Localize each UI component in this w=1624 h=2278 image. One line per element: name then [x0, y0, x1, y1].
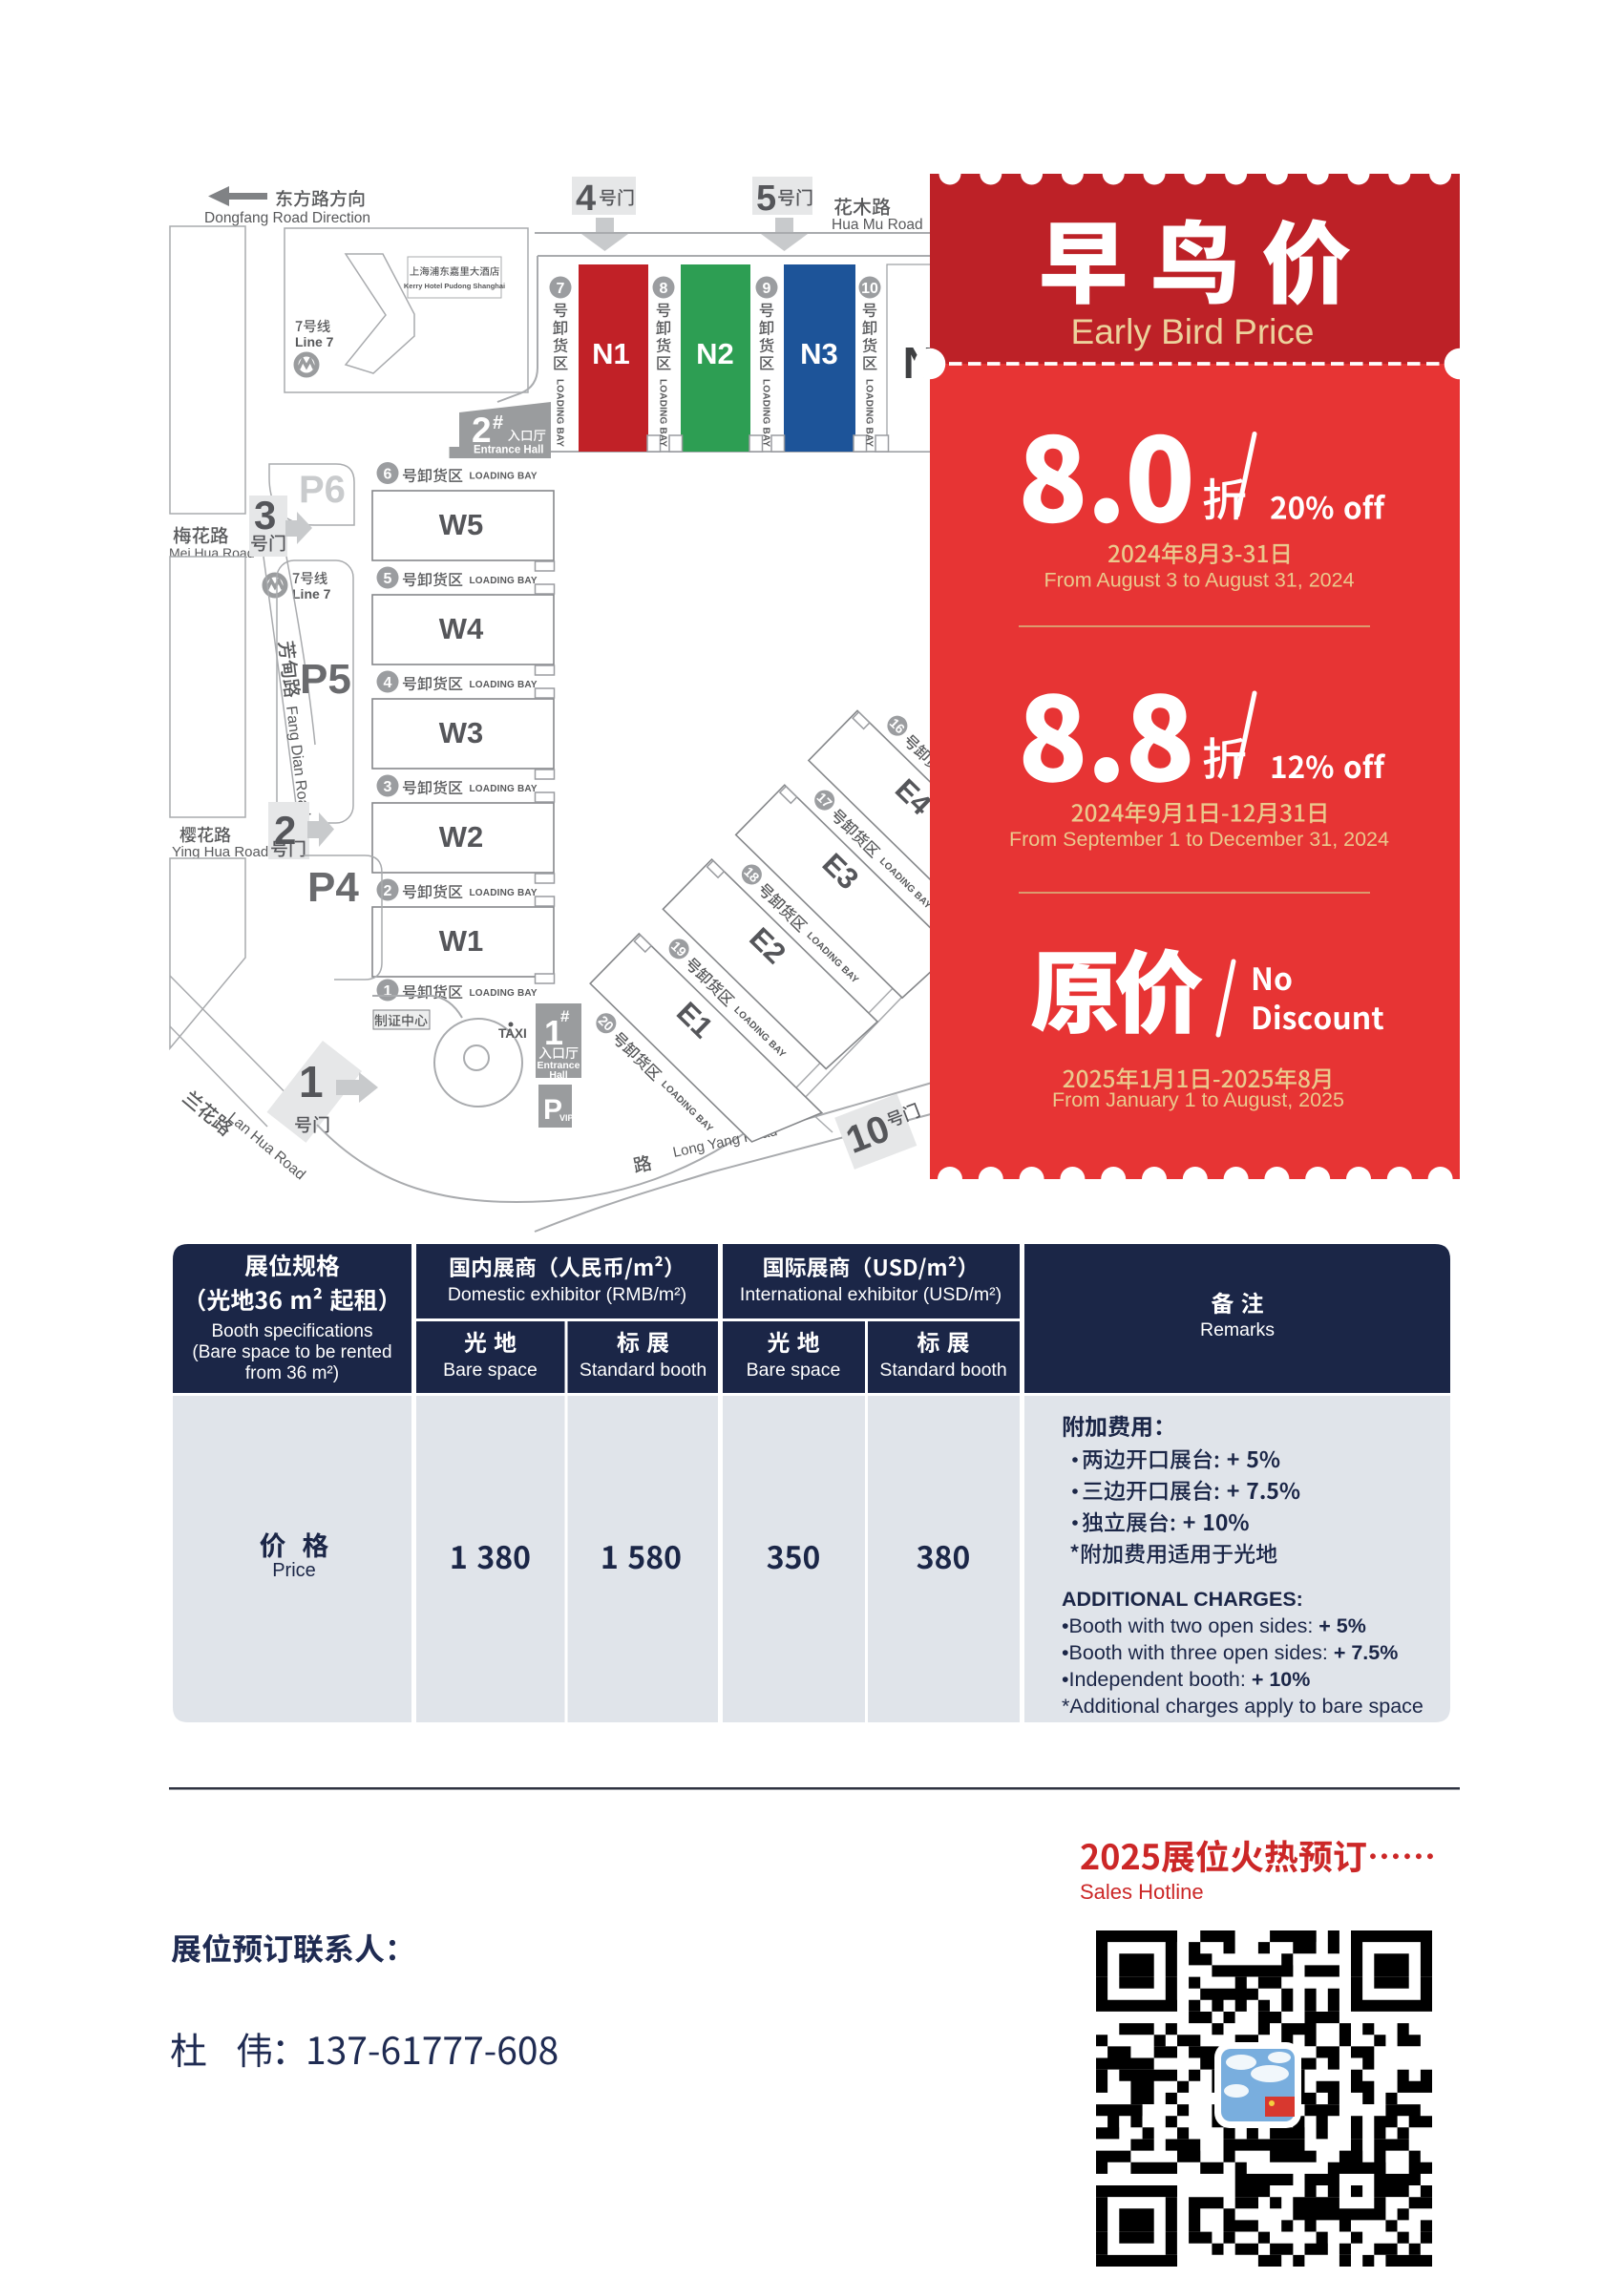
svg-text:LOADING BAY: LOADING BAY [761, 379, 771, 447]
svg-text:Hua Mu Road: Hua Mu Road [832, 217, 923, 233]
svg-text:•Independent booth: + 10%: •Independent booth: + 10% [1062, 1668, 1310, 1691]
svg-text:Price: Price [272, 1560, 316, 1581]
svg-text:N1: N1 [592, 337, 630, 370]
svg-text:Standard booth: Standard booth [580, 1360, 707, 1381]
svg-text:4: 4 [576, 179, 596, 219]
svg-text:6: 6 [384, 467, 392, 483]
svg-text:5: 5 [384, 571, 392, 587]
svg-text:from 36 m²): from 36 m²) [245, 1363, 339, 1383]
svg-text:N2: N2 [696, 337, 734, 370]
svg-text:5: 5 [756, 179, 776, 219]
svg-text:20: 20 [596, 1013, 617, 1034]
svg-text:#: # [493, 412, 503, 433]
svg-text:TAXI: TAXI [498, 1026, 527, 1041]
svg-text:Hall: Hall [549, 1069, 567, 1081]
svg-text:From August 3 to August 31, 20: From August 3 to August 31, 2024 [1044, 569, 1354, 592]
svg-text:4: 4 [384, 675, 392, 691]
svg-text:16: 16 [887, 715, 908, 736]
svg-text:LOADING BAY: LOADING BAY [470, 988, 538, 999]
svg-text:Remarks: Remarks [1200, 1319, 1275, 1340]
svg-text:LOADING BAY: LOADING BAY [470, 680, 538, 690]
svg-text:Line 7: Line 7 [295, 334, 334, 349]
svg-text:Entrance Hall: Entrance Hall [474, 445, 544, 456]
svg-text:8: 8 [660, 281, 668, 297]
svg-text:•Booth with two open sides: +: •Booth with two open sides: + 5% [1062, 1614, 1366, 1637]
svg-text:9: 9 [763, 281, 771, 297]
svg-text:International exhibitor (USD/m: International exhibitor (USD/m²) [740, 1284, 1002, 1305]
svg-text:Line 7: Line 7 [292, 586, 331, 601]
svg-text:LOADING BAY: LOADING BAY [470, 576, 538, 586]
svg-text:#: # [560, 1007, 570, 1025]
svg-text:3: 3 [254, 493, 276, 538]
svg-text:7: 7 [557, 281, 565, 297]
svg-text:Fang Dian Road: Fang Dian Road [283, 705, 312, 817]
svg-text:19: 19 [668, 939, 689, 960]
svg-text:W1: W1 [439, 924, 484, 958]
svg-text:VIP: VIP [559, 1113, 574, 1123]
svg-text:1: 1 [299, 1057, 324, 1107]
svg-text:17: 17 [813, 790, 834, 811]
svg-text:W3: W3 [439, 716, 484, 749]
svg-text:Domestic exhibitor (RMB/m²): Domestic exhibitor (RMB/m²) [448, 1284, 686, 1305]
svg-text:W2: W2 [439, 820, 484, 854]
svg-text:2: 2 [384, 883, 392, 899]
svg-text:Bare space: Bare space [747, 1360, 841, 1381]
svg-text:ADDITIONAL CHARGES:: ADDITIONAL CHARGES: [1062, 1588, 1303, 1611]
svg-text:Booth specifications: Booth specifications [212, 1321, 373, 1341]
svg-text:LOADING BAY: LOADING BAY [658, 379, 668, 447]
svg-text:N3: N3 [800, 337, 838, 370]
svg-text:*Additional charges apply to b: *Additional charges apply to bare space [1062, 1695, 1424, 1718]
svg-text:W5: W5 [439, 508, 484, 541]
svg-text:18: 18 [741, 864, 762, 885]
svg-text:P4: P4 [307, 864, 359, 911]
svg-text:LOADING BAY: LOADING BAY [470, 784, 538, 794]
svg-text:P6: P6 [299, 469, 346, 511]
svg-text:LOADING BAY: LOADING BAY [470, 472, 538, 482]
svg-text:From January 1 to August, 2025: From January 1 to August, 2025 [1052, 1088, 1344, 1111]
svg-text:•Booth with three open sides:: •Booth with three open sides: + 7.5% [1062, 1641, 1398, 1664]
svg-text:1: 1 [384, 983, 392, 1000]
svg-text:3: 3 [384, 779, 392, 795]
svg-text:Sales Hotline: Sales Hotline [1080, 1880, 1204, 1904]
svg-text:Early Bird Price: Early Bird Price [1071, 312, 1315, 351]
svg-text:From September 1 to December 3: From September 1 to December 31, 2024 [1009, 828, 1389, 851]
svg-text:10: 10 [861, 281, 878, 297]
svg-text:LOADING BAY: LOADING BAY [864, 379, 875, 447]
svg-text:LOADING BAY: LOADING BAY [555, 379, 565, 447]
svg-text:(Bare space to be rented: (Bare space to be rented [192, 1342, 391, 1362]
svg-text:W4: W4 [439, 612, 484, 645]
svg-text:P5: P5 [300, 656, 351, 703]
svg-text:Kerry Hotel Pudong Shanghai: Kerry Hotel Pudong Shanghai [404, 282, 505, 290]
svg-text:LOADING BAY: LOADING BAY [470, 888, 538, 898]
svg-text:Bare space: Bare space [443, 1360, 538, 1381]
svg-text:Standard booth: Standard booth [879, 1360, 1006, 1381]
svg-text:Dongfang Road Direction: Dongfang Road Direction [204, 210, 370, 226]
